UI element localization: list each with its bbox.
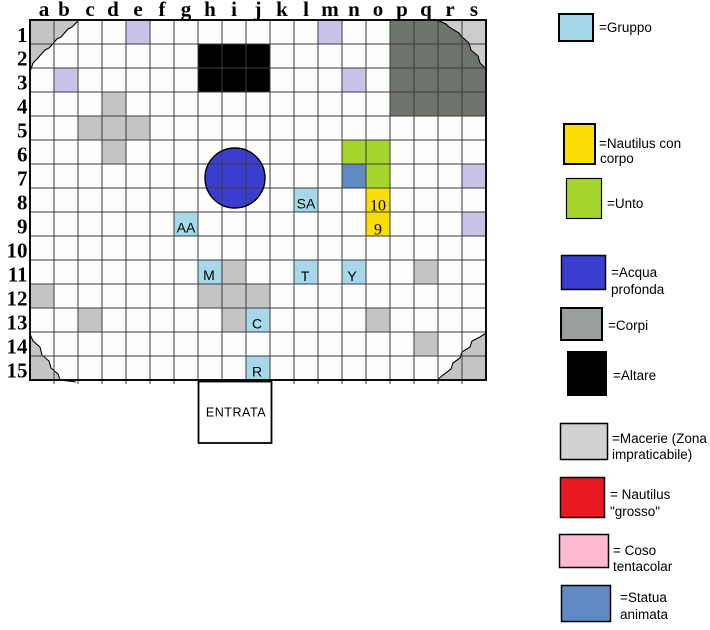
- svg-text:p: p: [396, 0, 408, 21]
- svg-text:12: 12: [7, 287, 28, 311]
- svg-text:= Nautilus: = Nautilus: [610, 487, 671, 502]
- svg-text:l: l: [303, 0, 309, 21]
- svg-text:M: M: [203, 267, 215, 283]
- svg-text:4: 4: [17, 95, 28, 119]
- svg-text:j: j: [254, 0, 262, 21]
- svg-text:c: c: [85, 0, 94, 21]
- svg-text:10: 10: [370, 198, 386, 215]
- svg-text:ENTRATA: ENTRATA: [206, 406, 266, 420]
- svg-text:q: q: [420, 0, 432, 21]
- svg-text:a: a: [39, 0, 50, 21]
- svg-text:g: g: [181, 0, 192, 21]
- svg-text:SA: SA: [297, 196, 316, 212]
- svg-text:14: 14: [7, 335, 29, 359]
- svg-text:15: 15: [7, 359, 28, 383]
- svg-text:6: 6: [17, 143, 28, 167]
- svg-text:Y: Y: [347, 268, 357, 284]
- svg-text:=Unto: =Unto: [607, 196, 643, 211]
- svg-text:profonda: profonda: [611, 282, 665, 297]
- svg-text:k: k: [276, 0, 288, 21]
- svg-text:11: 11: [8, 263, 28, 287]
- svg-text:=Macerie (Zona: =Macerie (Zona: [612, 431, 707, 446]
- svg-text:n: n: [348, 0, 360, 21]
- svg-text:R: R: [252, 364, 262, 380]
- svg-text:=Corpi: =Corpi: [608, 318, 648, 333]
- svg-text:r: r: [445, 0, 454, 21]
- svg-text:= Coso: = Coso: [613, 543, 656, 558]
- svg-text:9: 9: [374, 222, 382, 239]
- svg-text:b: b: [58, 0, 70, 21]
- svg-text:7: 7: [17, 167, 28, 191]
- svg-text:e: e: [133, 0, 142, 21]
- svg-text:3: 3: [17, 71, 28, 95]
- svg-text:5: 5: [17, 119, 28, 143]
- svg-text:=Statua: =Statua: [620, 590, 667, 605]
- svg-text:animata: animata: [620, 607, 669, 622]
- svg-text:C: C: [252, 316, 262, 332]
- svg-text:1: 1: [17, 23, 28, 47]
- svg-text:"grosso": "grosso": [610, 504, 660, 519]
- svg-text:o: o: [373, 0, 384, 21]
- svg-text:m: m: [321, 0, 339, 21]
- svg-text:8: 8: [17, 191, 28, 215]
- svg-text:f: f: [159, 0, 167, 21]
- svg-text:=Acqua: =Acqua: [611, 265, 658, 280]
- svg-text:i: i: [231, 0, 237, 21]
- svg-text:2: 2: [17, 47, 28, 71]
- svg-text:13: 13: [7, 311, 28, 335]
- svg-text:T: T: [301, 268, 310, 284]
- svg-text:corpo: corpo: [600, 151, 634, 166]
- svg-text:=Nautilus con: =Nautilus con: [599, 136, 681, 151]
- svg-text:AA: AA: [177, 220, 196, 236]
- svg-text:impraticabile): impraticabile): [612, 447, 692, 462]
- svg-text:d: d: [107, 0, 119, 21]
- svg-text:tentacolar: tentacolar: [613, 559, 673, 574]
- svg-text:9: 9: [17, 215, 28, 239]
- svg-text:=Gruppo: =Gruppo: [599, 20, 652, 35]
- svg-text:s: s: [470, 0, 478, 21]
- svg-text:=Altare: =Altare: [613, 368, 656, 383]
- svg-text:10: 10: [7, 239, 28, 263]
- svg-text:h: h: [204, 0, 216, 21]
